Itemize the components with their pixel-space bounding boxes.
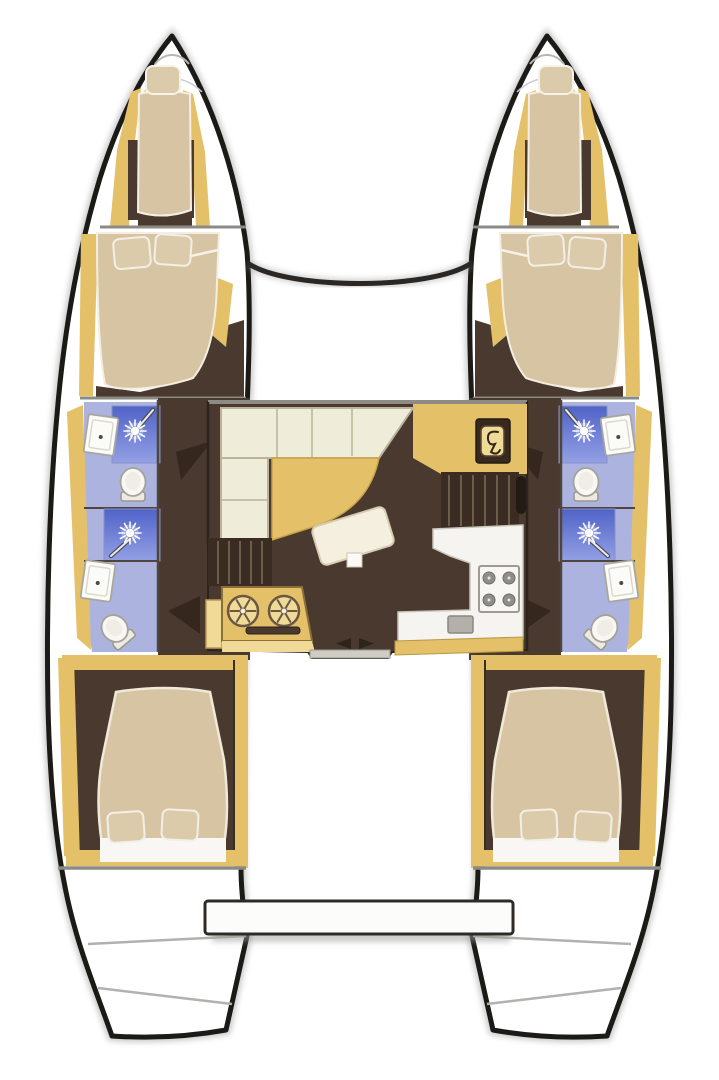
side-step: [206, 600, 222, 648]
sofa-chaise: [221, 458, 268, 540]
stairwell: [441, 472, 519, 528]
saloon: [206, 402, 527, 658]
basin-icon: [228, 596, 258, 626]
catamaran-floorplan-page: [0, 0, 719, 1080]
sofa-back-row: [221, 408, 413, 458]
drawer-slot: [246, 627, 300, 634]
stove-icon: [479, 566, 519, 612]
basin-icon: [269, 596, 299, 626]
companionway-steps-port: [208, 538, 272, 586]
table-leg: [347, 553, 362, 567]
companionway-steps-starboard: [441, 472, 526, 528]
aft-platform-bench: [205, 901, 513, 934]
handrail: [516, 476, 526, 514]
catamaran-floorplan: [0, 0, 719, 1080]
galley-sink: [448, 616, 473, 633]
wet-bar-unit: [206, 587, 315, 652]
counter-front: [222, 641, 315, 652]
door-track: [310, 650, 390, 658]
helm-plate: [481, 426, 504, 456]
